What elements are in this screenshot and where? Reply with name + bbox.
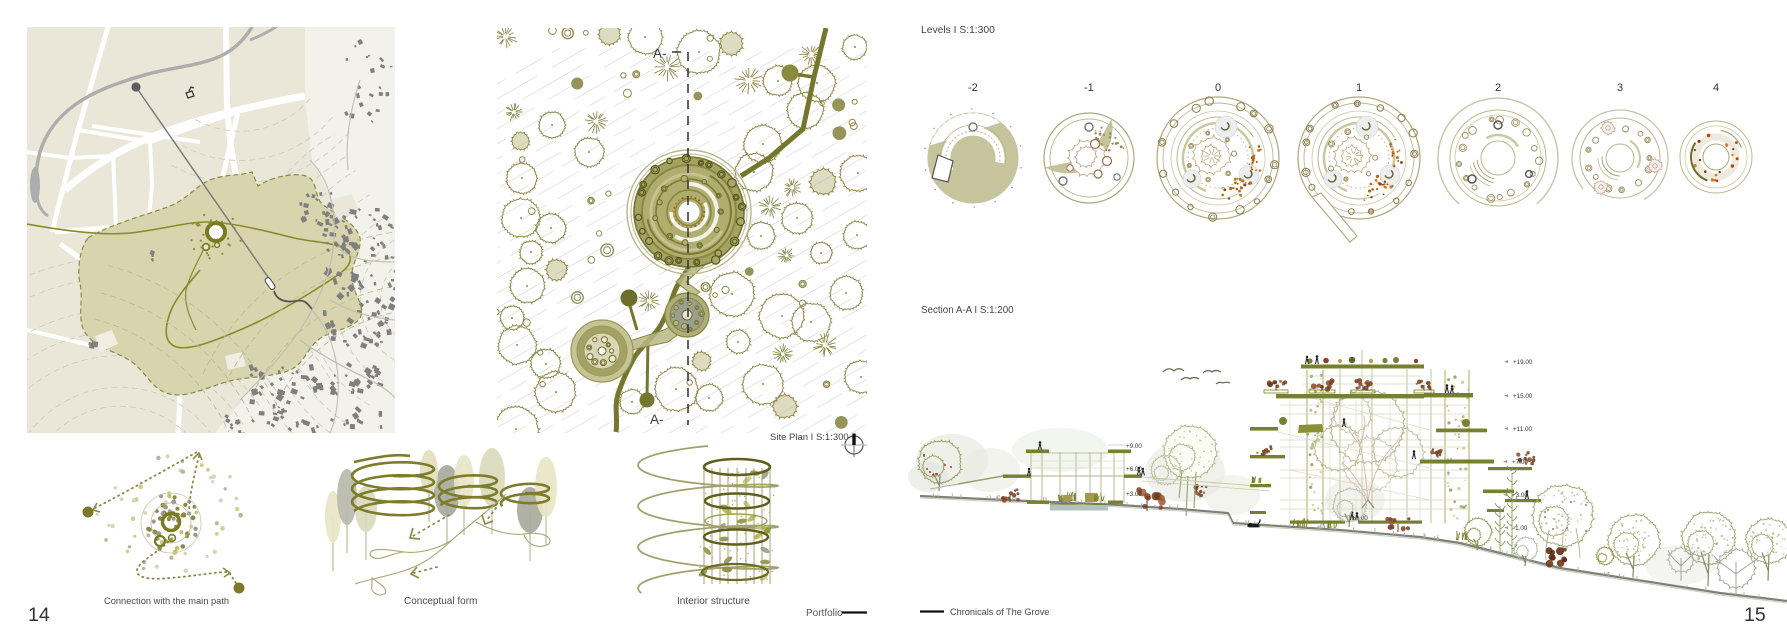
svg-text:A-: A- (653, 46, 667, 61)
svg-text:15: 15 (1744, 604, 1766, 626)
svg-text:+15.00: +15.00 (1513, 393, 1533, 400)
svg-text:2: 2 (1495, 82, 1501, 94)
svg-text:Chronicals of The Grove: Chronicals of The Grove (950, 607, 1049, 617)
svg-text:Site Plan I S:1:300: Site Plan I S:1:300 (770, 432, 849, 443)
svg-text:Interior structure: Interior structure (677, 596, 750, 607)
svg-text:14: 14 (28, 604, 50, 626)
svg-text:+6.00: +6.00 (1126, 466, 1142, 473)
svg-text:Section A-A I S:1:200: Section A-A I S:1:200 (921, 305, 1014, 316)
svg-text:3: 3 (1617, 82, 1623, 94)
svg-text:+11.00: +11.00 (1513, 426, 1532, 433)
svg-text:+9.00: +9.00 (1126, 443, 1142, 450)
svg-text:-1.00: -1.00 (1513, 525, 1528, 532)
svg-text:Levels I S:1:300: Levels I S:1:300 (921, 25, 995, 36)
svg-text:A-: A- (650, 412, 664, 427)
svg-text:1: 1 (1356, 82, 1362, 94)
svg-text:Conceptual form: Conceptual form (404, 596, 477, 607)
svg-text:+7.00: +7.00 (1512, 459, 1528, 466)
svg-text:Connection with the main path: Connection with the main path (104, 596, 229, 606)
svg-text:+3.00: +3.00 (1512, 492, 1528, 499)
svg-text:-2: -2 (968, 82, 978, 94)
svg-text:-1: -1 (1084, 82, 1094, 94)
svg-text:+19.00: +19.00 (1513, 359, 1533, 366)
svg-text:0: 0 (1215, 82, 1221, 94)
svg-text:4: 4 (1713, 82, 1719, 94)
svg-text:Portfolio: Portfolio (806, 608, 843, 619)
